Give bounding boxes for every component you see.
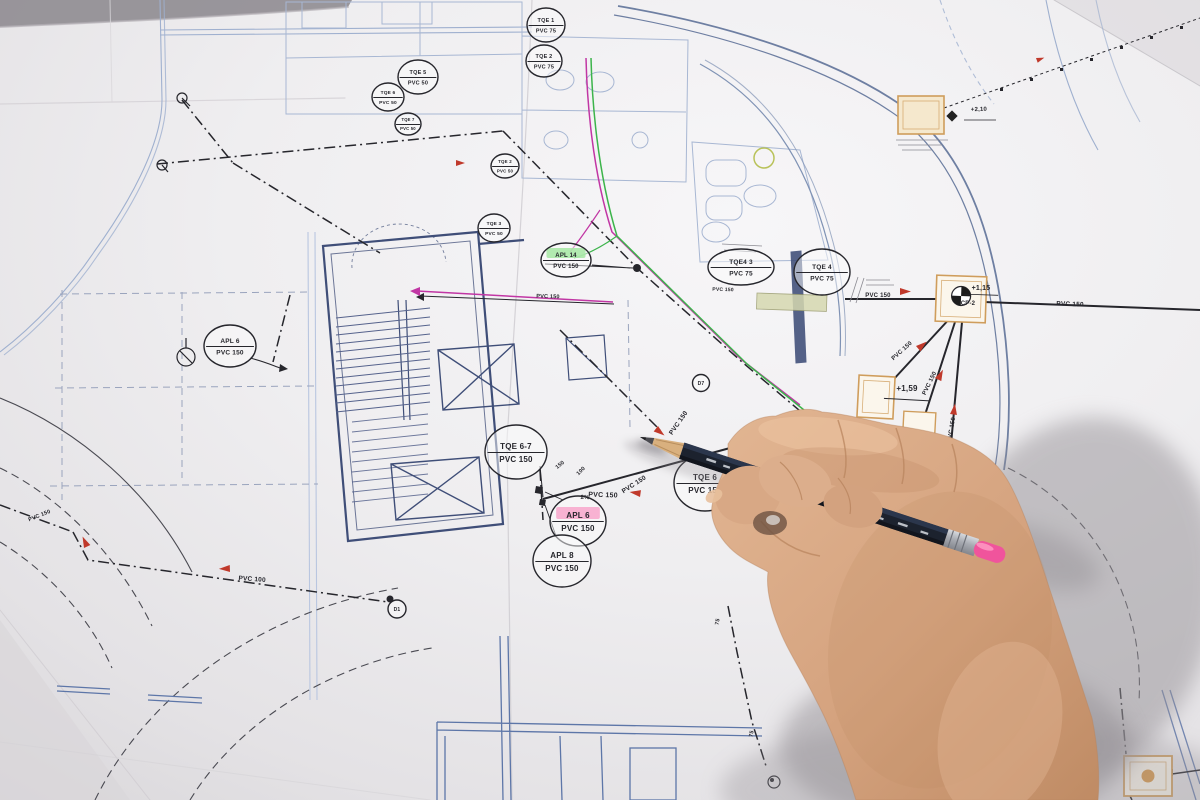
svg-text:TQE 2: TQE 2	[498, 159, 512, 164]
pipe-label: +1,59	[896, 384, 918, 393]
node-label-d1: D1	[388, 600, 406, 618]
pipe-label: CP-2	[961, 301, 976, 307]
pipe-label: PVC 150	[536, 294, 560, 301]
blueprint-photo-canvas: TQE 1PVC 75TQE 2PVC 75TQE 5PVC 50TQE 6PV…	[0, 0, 1200, 800]
svg-text:PVC 50: PVC 50	[497, 168, 514, 173]
svg-text:APL 14: APL 14	[555, 253, 577, 259]
svg-text:PVC 75: PVC 75	[536, 29, 556, 35]
khaki-beam	[756, 293, 827, 311]
svg-text:TQE 3: TQE 3	[487, 221, 502, 227]
svg-text:TQE 6: TQE 6	[381, 90, 396, 96]
node-label-apl14: APL 14PVC 150	[541, 243, 591, 277]
node-label-apl6L: APL 6PVC 150	[204, 325, 256, 367]
svg-text:PVC 75: PVC 75	[810, 276, 834, 283]
svg-text:PVC 50: PVC 50	[408, 81, 428, 87]
svg-text:TQE 5: TQE 5	[410, 70, 427, 76]
svg-text:PVC 150: PVC 150	[216, 350, 244, 357]
node-label-apl8: APL 8PVC 150	[533, 535, 591, 587]
node-label-tqe43: TQE4 3PVC 75	[708, 249, 774, 285]
svg-text:TQE 7: TQE 7	[401, 117, 415, 122]
node-label-tqe67: TQE 6-7PVC 150	[485, 425, 547, 479]
junction-dot	[633, 264, 641, 272]
node-label-tqe5: TQE 5PVC 50	[398, 60, 438, 94]
node-label-tqe6: TQE 6PVC 50	[372, 83, 404, 111]
svg-text:PVC 150: PVC 150	[561, 524, 595, 533]
svg-text:APL 8: APL 8	[550, 551, 574, 560]
svg-text:PVC 150: PVC 150	[499, 455, 533, 464]
svg-text:PVC 150: PVC 150	[545, 564, 579, 573]
node-label-tqe1: TQE 1PVC 75	[527, 8, 565, 42]
svg-text:TQE4 3: TQE4 3	[729, 259, 753, 266]
svg-text:D1: D1	[394, 607, 401, 613]
svg-text:PVC 75: PVC 75	[534, 65, 554, 71]
svg-text:TQE 2: TQE 2	[536, 54, 553, 60]
pipe-label: PVC 150	[588, 491, 618, 499]
node-label-tqe2: TQE 2PVC 75	[526, 45, 562, 77]
pipe-label: PVC 150	[712, 287, 734, 294]
node-label-tqe7: TQE 7PVC 50	[395, 113, 421, 135]
pipe-label: +2,10	[971, 107, 988, 114]
svg-text:PVC 50: PVC 50	[400, 126, 416, 131]
svg-text:D7: D7	[698, 381, 705, 387]
svg-text:TQE 1: TQE 1	[538, 18, 555, 24]
node-label-tqe2b: TQE 2PVC 50	[491, 154, 519, 178]
node-label-d7: D7	[693, 375, 710, 392]
svg-text:PVC 50: PVC 50	[485, 231, 503, 237]
pipe-label: PVC 150	[1056, 301, 1084, 309]
photo-of-blueprint: TQE 1PVC 75TQE 2PVC 75TQE 5PVC 50TQE 6PV…	[0, 0, 1200, 800]
pipe-label: PVC 150	[865, 293, 891, 299]
node-label-tqe3b: TQE 3PVC 50	[478, 214, 510, 242]
svg-text:PVC 50: PVC 50	[379, 100, 397, 106]
svg-text:APL 6: APL 6	[220, 338, 239, 345]
pipe-label: 2%	[580, 495, 590, 501]
svg-text:TQE 4: TQE 4	[812, 264, 832, 271]
node-label-tqe4: TQE 4PVC 75	[794, 249, 850, 295]
svg-text:TQE 6-7: TQE 6-7	[500, 442, 532, 451]
svg-text:APL 6: APL 6	[566, 511, 590, 520]
svg-text:PVC 75: PVC 75	[729, 271, 753, 278]
pipe-label: +1,15	[972, 285, 991, 292]
svg-text:PVC 150: PVC 150	[553, 264, 579, 270]
